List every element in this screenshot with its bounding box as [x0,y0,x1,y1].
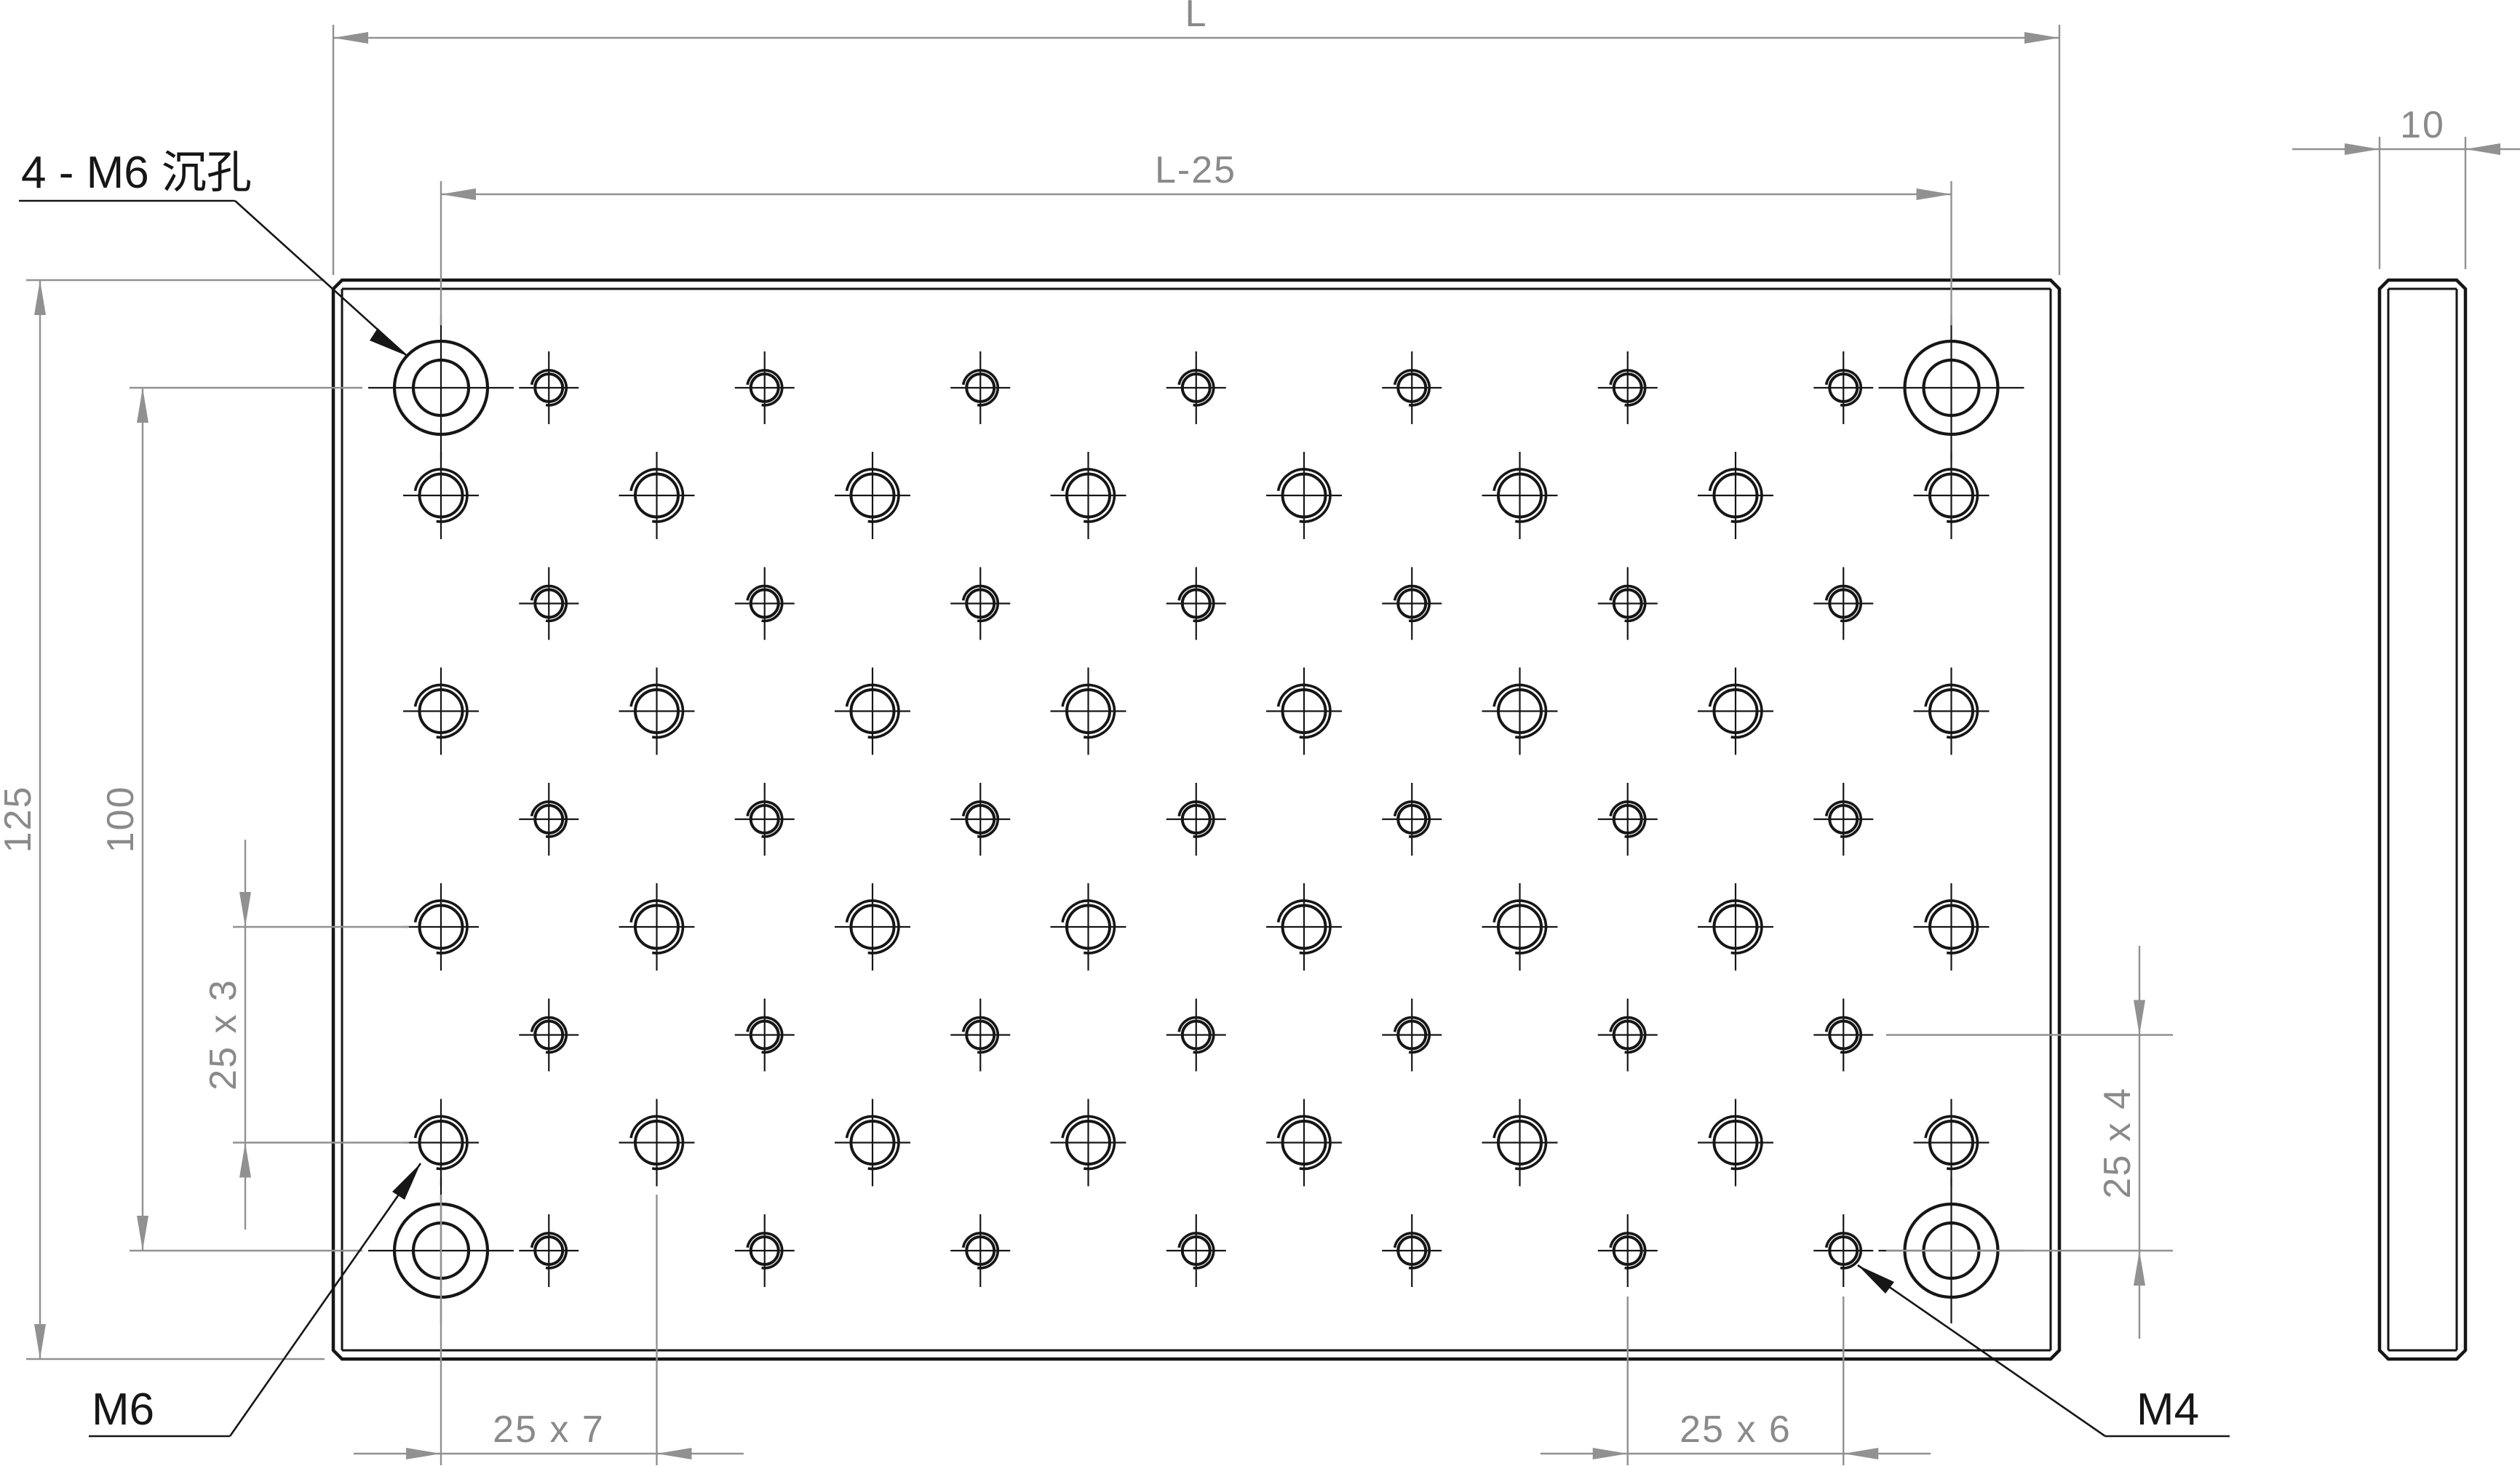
dim-corner-span-vertical: 100 [100,388,362,1251]
dim-text-L: L [1185,0,1208,35]
side-outline [2380,280,2465,1359]
dim-text-25x6: 25 x 6 [1680,1409,1792,1451]
counterbore-note-text: 4 - M6 沉孔 [21,148,252,198]
dim-text-L25: L-25 [1155,149,1236,191]
technical-drawing-canvas: L L-25 125 100 25 x 3 [0,0,2520,1466]
side-view [2380,280,2465,1359]
front-view [333,280,2059,1359]
dim-thickness: 10 [2292,104,2520,269]
dim-text-10: 10 [2400,104,2445,146]
dim-text-25x3: 25 x 3 [202,979,245,1091]
dim-text-25x7: 25 x 7 [493,1409,605,1451]
dim-text-25x4: 25 x 4 [2096,1087,2139,1199]
dim-text-100: 100 [100,786,142,853]
m4-label-text: M4 [2137,1385,2199,1435]
m6-label-text: M6 [92,1385,154,1435]
dim-overall-length: L [333,0,2059,275]
dim-text-125: 125 [0,786,39,853]
dim-overall-height: 125 [0,280,325,1359]
